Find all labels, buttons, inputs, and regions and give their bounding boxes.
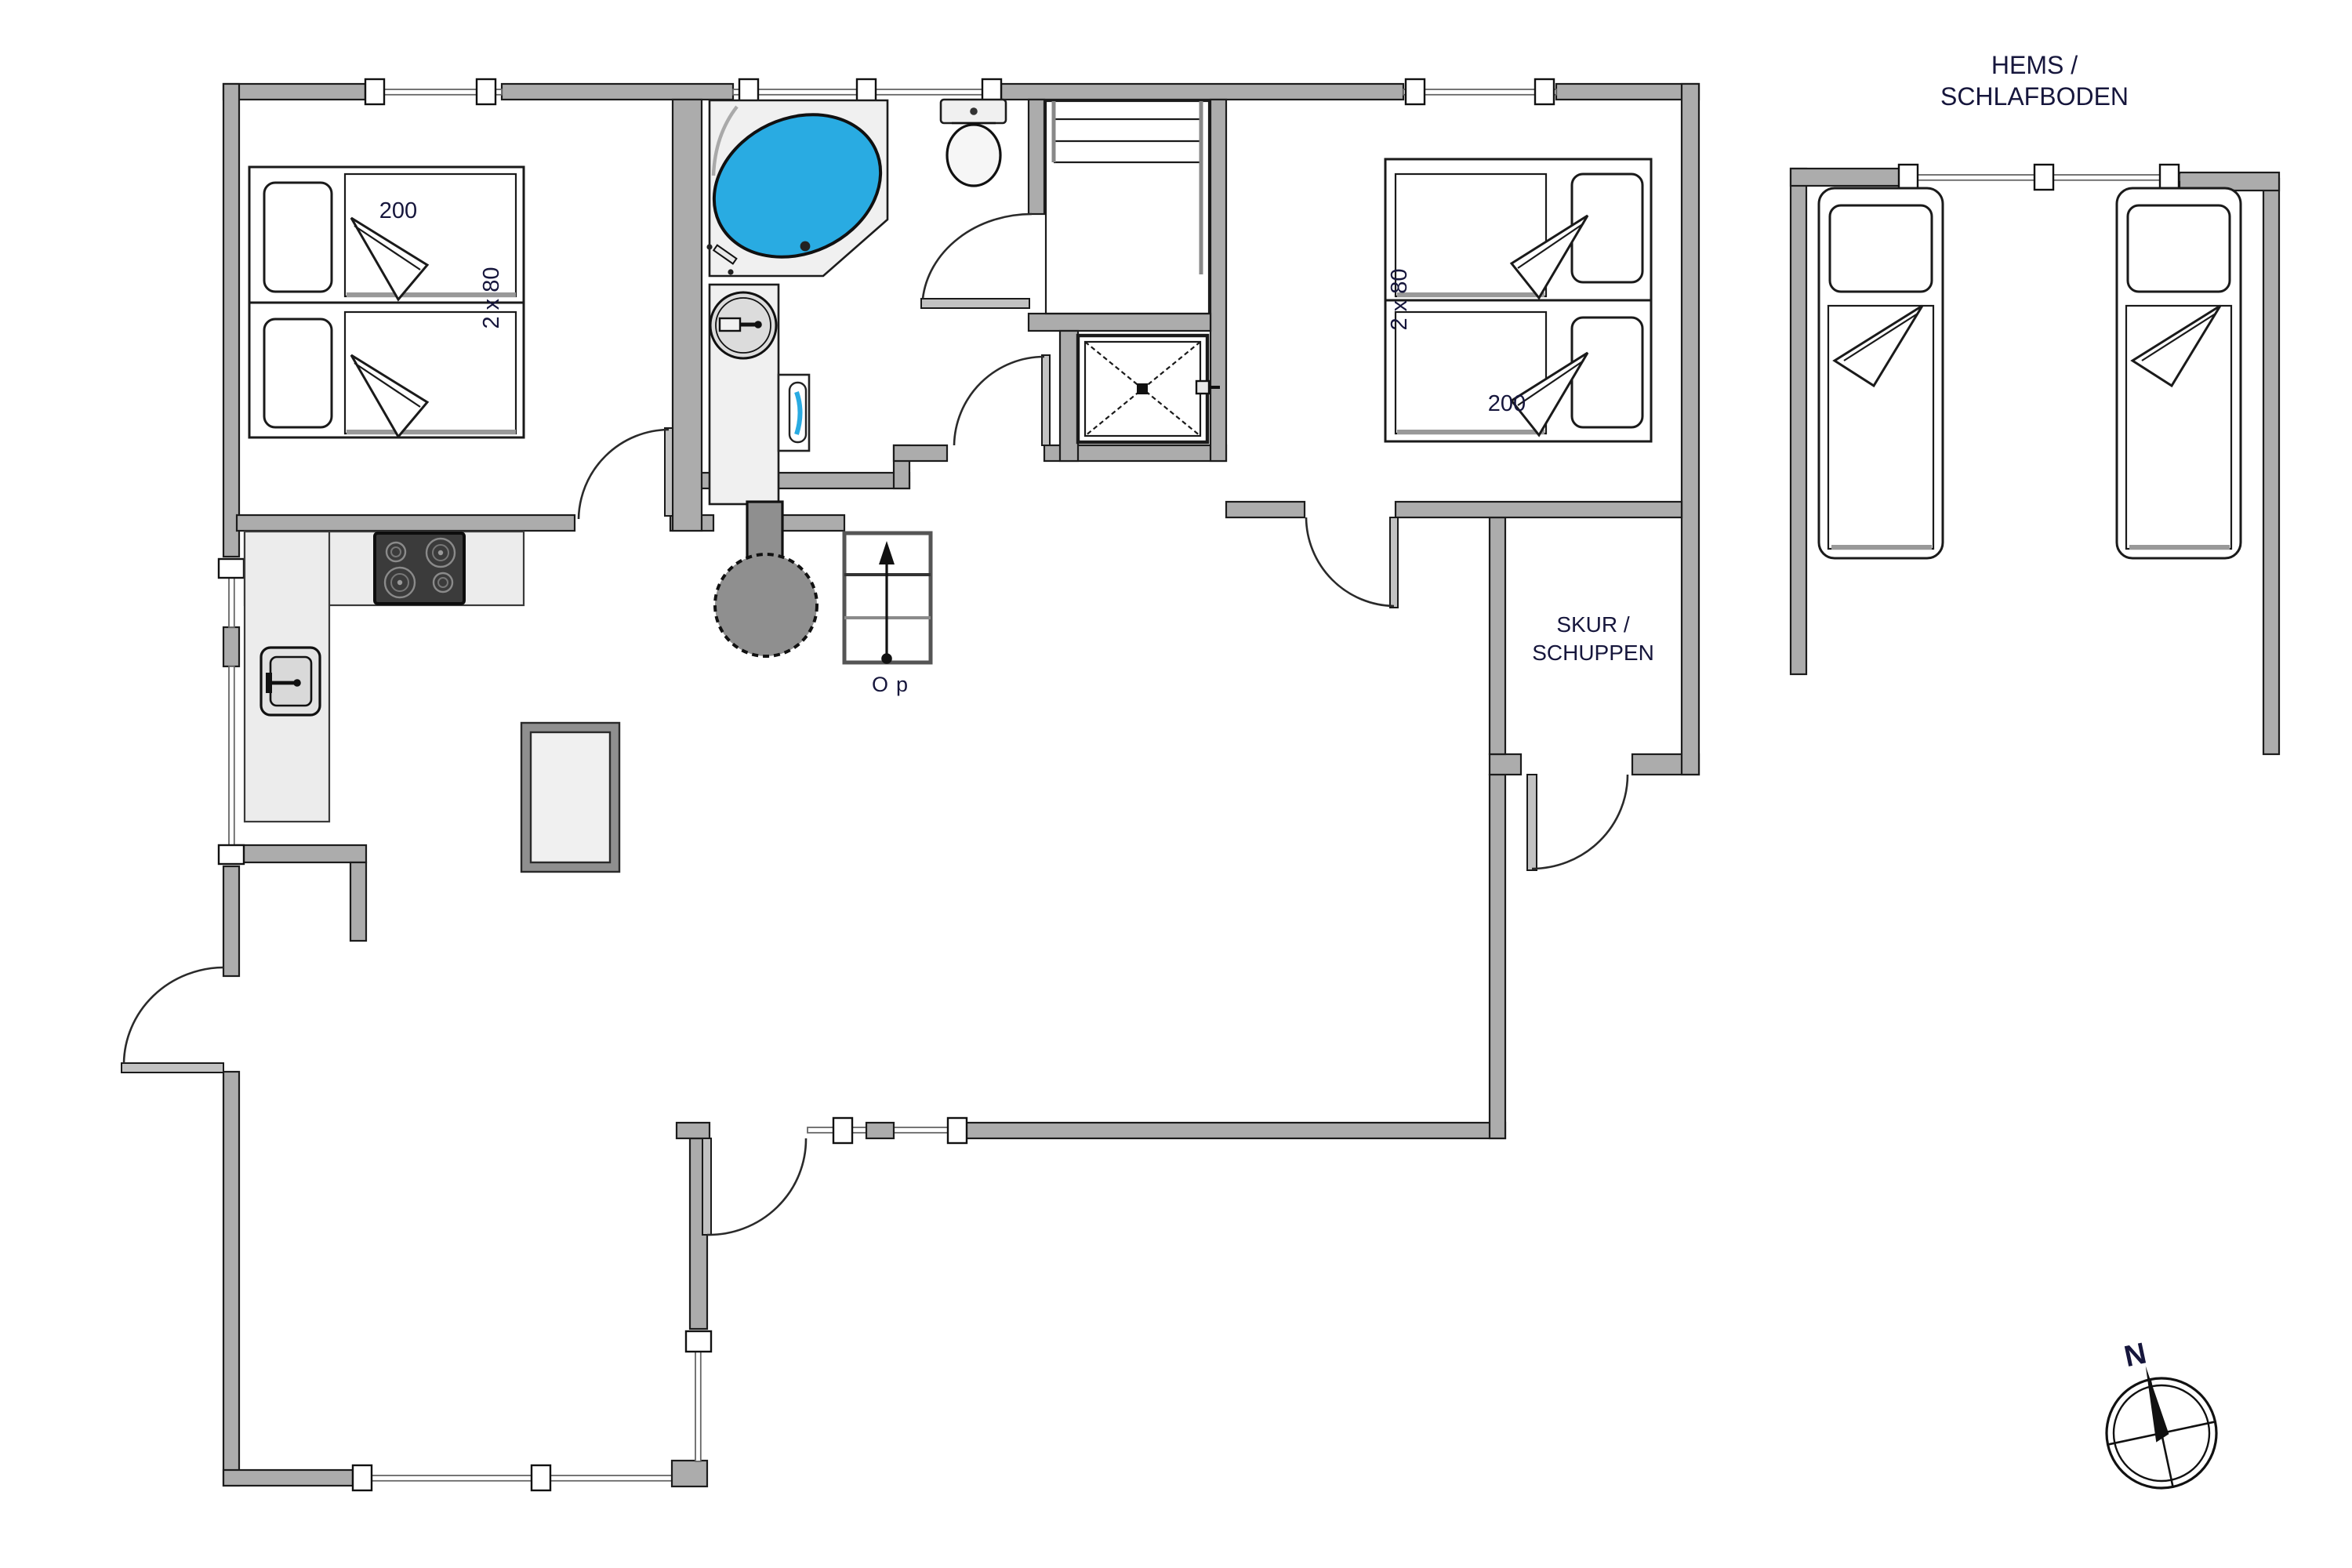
- floor-plan: 200 2 x 80: [0, 0, 2352, 1568]
- north-needle-icon: [2140, 1364, 2170, 1443]
- stairs-label: Op: [872, 673, 916, 696]
- window-glass: [229, 572, 234, 627]
- window-icon: [219, 845, 244, 864]
- floor-plan-canvas: 200 2 x 80: [0, 0, 2352, 1568]
- window-icon: [1899, 165, 1918, 190]
- bathroom: [691, 89, 1006, 504]
- bedroom-left-door: [579, 428, 673, 519]
- bed-width-label: 2 x 80: [479, 267, 504, 329]
- compass-north-label: N: [2122, 1337, 2150, 1374]
- loft-label-line2: SCHLAFBODEN: [1940, 82, 2129, 111]
- bathroom-door: [921, 214, 1032, 308]
- compass-rose-icon: N: [2088, 1326, 2227, 1498]
- window-icon: [2160, 165, 2179, 190]
- pillow: [1572, 318, 1642, 427]
- flush-button: [970, 107, 978, 115]
- kitchen-sink: [261, 648, 320, 715]
- shower: [1078, 336, 1220, 442]
- window-icon: [477, 79, 495, 104]
- shower-valve: [1196, 381, 1209, 394]
- loft-label-line1: HEMS /: [1991, 51, 2078, 79]
- bedroom-right: 2 x 80 200: [1385, 159, 1651, 441]
- shed-label-line1: SKUR /: [1556, 612, 1630, 637]
- window-icon: [833, 1118, 852, 1143]
- bed-length-label: 200: [1488, 391, 1526, 416]
- window-icon: [1535, 79, 1554, 104]
- window-icon: [353, 1465, 372, 1490]
- entrance-door: [122, 967, 223, 1073]
- shed: SKUR / SCHUPPEN: [1532, 612, 1654, 665]
- tub-drain: [800, 241, 811, 252]
- toilet-bowl: [947, 125, 1000, 186]
- shed-door: [1527, 775, 1628, 870]
- kitchen-island: [521, 723, 619, 872]
- window-icon: [219, 559, 244, 578]
- toilet: [941, 100, 1006, 186]
- window-glass: [695, 1352, 701, 1461]
- window-glass: [372, 1475, 673, 1481]
- stove-body: [715, 554, 817, 656]
- pillow: [264, 183, 332, 292]
- hall-door: [954, 355, 1050, 445]
- tap-icon: [266, 673, 272, 693]
- sleeping-loft: HEMS / SCHLAFBODEN: [1791, 51, 2279, 754]
- window-glass: [1403, 89, 1556, 95]
- kitchen: [245, 532, 619, 872]
- shed-label-line2: SCHUPPEN: [1532, 641, 1654, 665]
- window-icon: [2034, 165, 2053, 190]
- pillow: [1572, 174, 1642, 282]
- sink-tap: [720, 318, 740, 331]
- window-icon: [1406, 79, 1425, 104]
- window-icon: [532, 1465, 550, 1490]
- bedroom-left: 200 2 x 80: [249, 167, 524, 437]
- pillow: [2128, 205, 2230, 292]
- loft-bed-left: [1819, 188, 1943, 558]
- window-glass: [229, 666, 234, 855]
- wardrobe: [1046, 101, 1209, 314]
- window-icon: [686, 1331, 711, 1352]
- pillow: [264, 319, 332, 427]
- bed-length-label: 200: [379, 198, 417, 223]
- pillow: [1830, 205, 1932, 292]
- window-icon: [365, 79, 384, 104]
- window-icon: [948, 1118, 967, 1143]
- stairs: Op: [844, 533, 931, 696]
- patio-door: [702, 1138, 806, 1235]
- bedroom-right-door: [1306, 517, 1398, 608]
- loft-bed-right: [2117, 188, 2241, 558]
- bed-width-label: 2 x 80: [1387, 269, 1412, 331]
- shower-drain: [1137, 383, 1148, 394]
- cooktop: [375, 533, 464, 604]
